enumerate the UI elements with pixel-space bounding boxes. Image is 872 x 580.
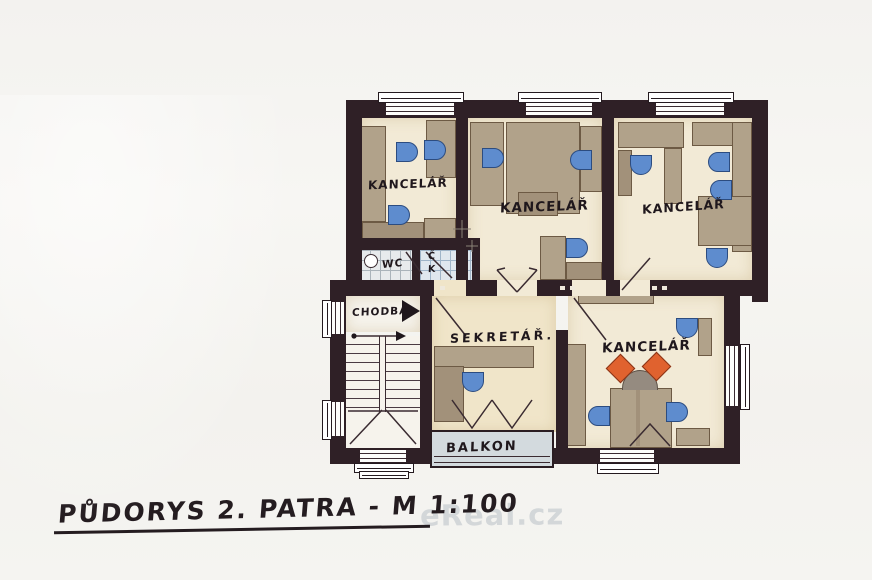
cabinet — [676, 428, 710, 446]
wc-sink — [364, 254, 378, 268]
window — [726, 346, 738, 406]
window-sill — [518, 92, 602, 103]
staircase-lower-run — [346, 412, 420, 448]
window-sill — [322, 300, 332, 338]
room-label-kitchenette-line1: Č — [428, 252, 436, 262]
wall-tick — [652, 286, 657, 290]
wall-office2-office3 — [602, 118, 614, 280]
cabinet — [424, 218, 456, 240]
desk — [434, 346, 534, 368]
room-label-kitchenette-line2: K — [428, 265, 437, 275]
chair-icon — [588, 406, 610, 426]
door-opening — [497, 280, 537, 296]
staircase-divider — [379, 336, 386, 412]
cabinet — [566, 344, 586, 446]
wall-secretary-office — [556, 330, 568, 448]
door-opening — [620, 280, 650, 296]
room-label-office-top-left: KANCELÁŘ — [368, 177, 448, 192]
room-label-wc: WC — [382, 258, 403, 271]
door-opening — [434, 280, 466, 296]
window-sill — [322, 400, 332, 440]
wall-tick — [560, 286, 565, 290]
wall-kitchenette-right — [472, 250, 480, 280]
window-sill — [740, 344, 750, 410]
entrance-opening — [360, 450, 406, 462]
room-label-office-bottom-right: KANCELÁŘ — [602, 339, 691, 356]
window — [600, 450, 654, 462]
window-sill — [378, 92, 464, 103]
window — [332, 302, 344, 334]
wall-wc-kitchenette — [412, 250, 420, 280]
chair-icon — [666, 402, 688, 422]
chair-icon — [566, 238, 588, 258]
desk — [434, 366, 464, 422]
desk — [664, 148, 682, 204]
cabinet — [540, 236, 566, 280]
desk — [566, 262, 602, 280]
entrance-step — [359, 471, 409, 479]
room-label-balcony: BALKON — [446, 440, 518, 456]
cabinet — [618, 122, 684, 148]
desk — [360, 126, 386, 222]
window — [332, 402, 344, 436]
room-label-office-top-middle: KANCELÁŘ — [500, 199, 589, 216]
wall-left-upper — [346, 100, 362, 294]
window — [386, 103, 454, 115]
door-opening — [572, 280, 606, 296]
window — [656, 103, 724, 115]
window — [526, 103, 592, 115]
chair-icon — [708, 152, 730, 172]
wall-tick — [570, 286, 575, 290]
wall-tick — [440, 286, 445, 290]
window-sill — [597, 463, 659, 474]
room-label-corridor: CHODBA — [352, 306, 409, 318]
scanned-floor-plan-page: KANCELÁŘ KANCELÁŘ KANCELÁŘ KANCELÁŘ SEKR… — [0, 0, 872, 580]
window-sill — [648, 92, 734, 103]
chair-icon — [570, 150, 592, 170]
wall-tick — [662, 286, 667, 290]
wall-right-upper — [752, 100, 768, 302]
wall-office1-office2 — [456, 118, 468, 280]
wall-stairs-secretary — [420, 296, 432, 448]
desk — [636, 390, 640, 446]
chair-icon — [424, 140, 446, 160]
chair-icon — [482, 148, 504, 168]
chair-icon — [388, 205, 410, 225]
desk — [610, 388, 672, 448]
wall-mid-band — [330, 280, 768, 296]
cabinet — [698, 318, 712, 356]
chair-icon — [396, 142, 418, 162]
wall-above-wc — [360, 238, 480, 250]
